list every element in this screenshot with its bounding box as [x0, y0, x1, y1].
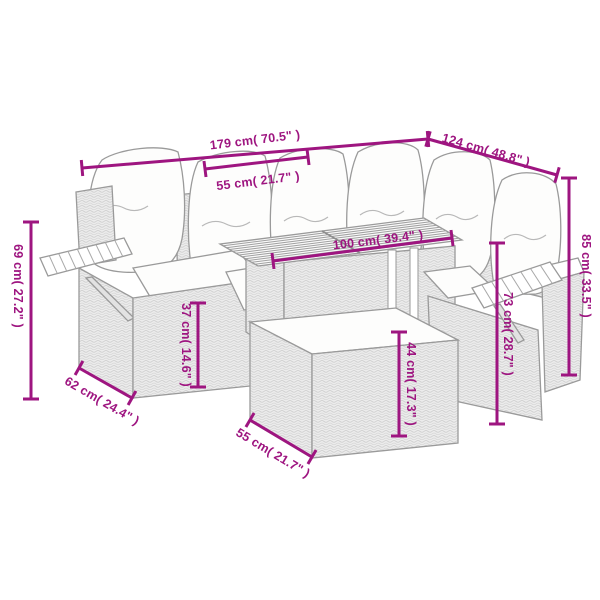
ottoman-front-panel [312, 340, 458, 458]
dim-ottoman-height-label: 44 cm( 17.3" ) [404, 342, 418, 426]
dim-seat-height-label: 37 cm( 14.6" ) [179, 303, 193, 387]
dim-total-height-label: 85 cm( 33.5" ) [579, 234, 593, 318]
product-dimension-diagram: 179 cm( 70.5" ) 124 cm( 48.8" ) 55 cm( 2… [0, 0, 600, 600]
dim-armrest-height-label: 73 cm( 28.7" ) [501, 292, 515, 376]
dim-left-height-line [23, 222, 39, 399]
ottoman [250, 308, 458, 458]
left-side-panel [79, 268, 133, 398]
dim-left-height-label: 69 cm( 27.2" ) [11, 244, 25, 328]
